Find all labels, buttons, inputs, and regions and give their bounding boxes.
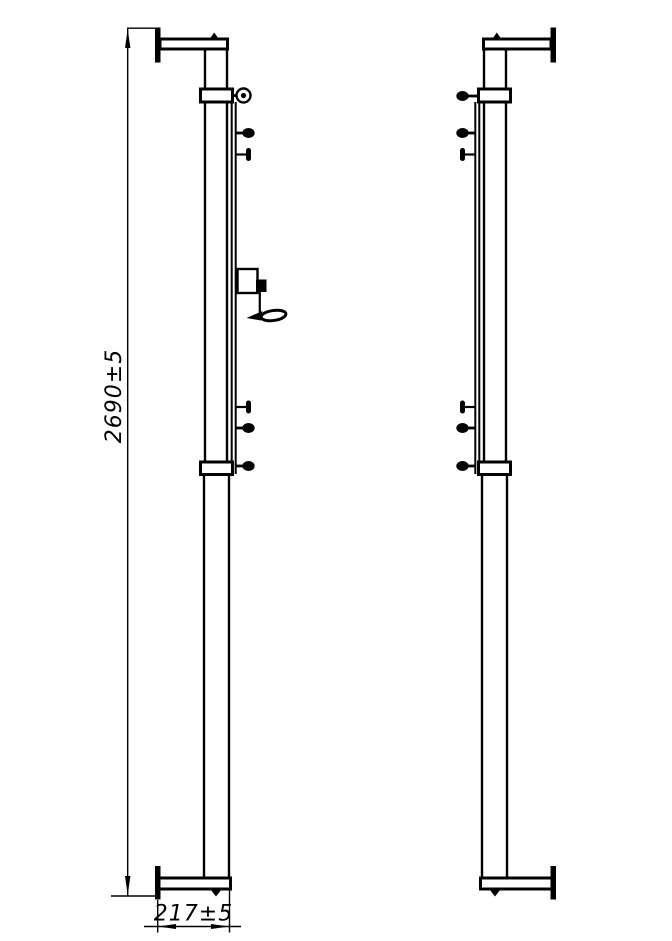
hook-knob xyxy=(456,423,468,433)
hook-knob xyxy=(242,128,254,138)
right-post-side-view xyxy=(456,28,556,900)
left-net-hook xyxy=(236,128,255,138)
hook-knob xyxy=(242,461,254,471)
right-tension-pin xyxy=(460,401,475,414)
winch-housing xyxy=(238,269,258,293)
right-bottom-flange xyxy=(551,866,557,900)
right-net-hook xyxy=(456,91,478,101)
winch-crank xyxy=(238,269,287,322)
height-dimension: 2690±5 xyxy=(102,28,160,896)
right-top-weld-mark xyxy=(492,33,503,41)
hook-knob xyxy=(456,461,468,471)
left-cable-pulley xyxy=(233,89,251,103)
right-base-plate xyxy=(481,878,553,889)
height-dimension-label: 2690±5 xyxy=(102,349,127,443)
pin-head xyxy=(246,148,251,161)
left-upper-collar xyxy=(201,89,233,102)
arrowhead-down xyxy=(125,876,130,895)
left-base-plate xyxy=(159,878,231,889)
right-tension-pin xyxy=(460,148,475,161)
left-bottom-weld-mark xyxy=(211,890,222,897)
right-net-hook xyxy=(456,128,475,138)
left-tension-pin xyxy=(236,401,251,414)
left-bottom-flange xyxy=(155,866,161,900)
left-top-weld-mark xyxy=(209,33,220,41)
right-joint-collar xyxy=(479,462,511,475)
right-net-hook xyxy=(456,461,475,471)
left-joint-collar xyxy=(201,462,233,475)
pin-head xyxy=(246,401,251,414)
hook-knob xyxy=(456,128,468,138)
right-net-hook xyxy=(456,423,475,433)
hook-knob xyxy=(456,91,468,101)
pin-head xyxy=(460,148,465,161)
arrowhead-up xyxy=(125,29,130,48)
hook-knob xyxy=(242,423,254,433)
left-tension-pin xyxy=(236,148,251,161)
winch-spindle xyxy=(256,280,267,293)
technical-drawing-page: 2690±5 217±5 xyxy=(0,0,672,941)
net-posts-drawing-canvas: 2690±5 217±5 xyxy=(0,0,672,941)
right-bottom-weld-mark xyxy=(490,890,501,897)
pin-head xyxy=(460,401,465,414)
left-net-hook xyxy=(236,461,255,471)
pulley-axle xyxy=(241,93,246,98)
width-dimension-label: 217±5 xyxy=(154,902,233,927)
crank-handle-ring xyxy=(260,309,286,322)
left-top-cap-plate xyxy=(160,39,228,49)
left-post-side-view xyxy=(155,28,287,900)
left-net-hook xyxy=(236,423,255,433)
right-upper-collar xyxy=(479,89,511,102)
right-top-cap-plate xyxy=(484,39,552,49)
